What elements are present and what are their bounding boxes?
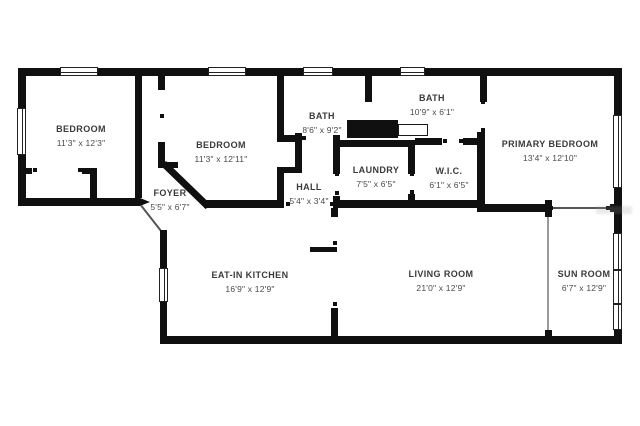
door-tick	[330, 202, 334, 206]
room-name: FOYER	[150, 187, 189, 201]
wall-segment	[477, 132, 485, 212]
wall-segment	[545, 330, 552, 344]
door-tick	[78, 168, 82, 172]
wall-segment	[160, 302, 167, 344]
wall-segment	[415, 138, 442, 145]
door-tick	[335, 172, 339, 176]
room-label-bath-2: BATH 10'9" x 6'1"	[410, 92, 454, 118]
wall-segment	[98, 68, 208, 76]
window	[303, 67, 333, 76]
room-dimensions: 8'6" x 9'2"	[302, 123, 341, 136]
window-sill	[613, 303, 622, 305]
room-dimensions: 5'5" x 6'7"	[150, 200, 189, 213]
wall-segment	[295, 133, 302, 167]
room-dimensions: 21'0" x 12'9"	[409, 281, 474, 294]
window-sill	[613, 269, 622, 271]
window	[159, 268, 168, 302]
room-name: SUN ROOM	[558, 268, 611, 282]
room-label-laundry: LAUNDRY 7'5" x 6'5"	[353, 164, 399, 190]
wall-segment	[158, 142, 165, 164]
room-label-sun-room: SUN ROOM 6'7" x 12'9"	[558, 268, 611, 294]
door-tick	[335, 191, 339, 195]
wall-segment	[333, 135, 340, 174]
room-label-wic: W.I.C. 6'1" x 6'5"	[429, 165, 468, 191]
room-dimensions: 16'9" x 12'9"	[212, 282, 289, 295]
floor-plan: BEDROOM 11'3" x 12'3" BEDROOM 11'3" x 12…	[0, 0, 640, 426]
wall-segment	[160, 230, 167, 268]
window	[60, 67, 98, 76]
door-tick	[160, 114, 164, 118]
room-name: LAUNDRY	[353, 164, 399, 178]
wall-segment	[477, 204, 552, 212]
room-name: BEDROOM	[195, 139, 248, 153]
room-dimensions: 11'3" x 12'3"	[56, 136, 106, 149]
kitchen-counter	[310, 247, 337, 252]
vanity-counter	[347, 120, 398, 138]
door-tick	[459, 139, 463, 143]
window	[208, 67, 246, 76]
door-tick	[549, 206, 553, 210]
wall-segment	[425, 68, 622, 76]
door-tick	[33, 168, 37, 172]
room-dimensions: 7'5" x 6'5"	[353, 177, 399, 190]
room-dimensions: 6'7" x 12'9"	[558, 281, 611, 294]
door-tick	[410, 190, 414, 194]
room-dimensions: 5'4" x 3'4"	[289, 194, 328, 207]
room-name: LIVING ROOM	[409, 268, 474, 282]
wall-segment	[277, 167, 284, 208]
room-label-bath-1: BATH 8'6" x 9'2"	[302, 110, 341, 136]
wall-segment	[160, 336, 622, 344]
wall-segment	[18, 68, 26, 108]
wall-segment	[135, 76, 142, 198]
wall-segment	[365, 68, 372, 102]
wall-segment	[331, 308, 338, 344]
wall-segment	[408, 140, 415, 174]
wall-segment	[18, 198, 140, 206]
room-name: PRIMARY BEDROOM	[502, 138, 599, 152]
door-tick	[481, 100, 485, 104]
watermark	[596, 206, 632, 214]
door-tick	[333, 302, 337, 306]
window	[613, 115, 622, 188]
room-name: BATH	[410, 92, 454, 106]
wall-segment	[480, 68, 487, 102]
room-label-hall: HALL 5'4" x 3'4"	[289, 181, 328, 207]
wall-segment	[246, 68, 303, 76]
room-name: W.I.C.	[429, 165, 468, 179]
room-dimensions: 10'9" x 6'1"	[410, 105, 454, 118]
closet-wall	[18, 168, 32, 174]
room-dimensions: 6'1" x 6'5"	[429, 178, 468, 191]
door-tick	[481, 128, 485, 132]
bath-fixture	[398, 124, 428, 136]
room-label-bedroom-1: BEDROOM 11'3" x 12'3"	[56, 123, 106, 149]
wall-segment	[340, 140, 415, 147]
window	[17, 108, 26, 155]
room-dimensions: 11'3" x 12'11"	[195, 152, 248, 165]
room-label-primary-bedroom: PRIMARY BEDROOM 13'4" x 12'10"	[502, 138, 599, 164]
wall-segment	[158, 76, 165, 90]
room-name: EAT-IN KITCHEN	[212, 269, 289, 283]
room-name: BATH	[302, 110, 341, 124]
room-name: BEDROOM	[56, 123, 106, 137]
wall-segment	[335, 200, 478, 208]
wall-segment	[277, 76, 284, 138]
door-tick	[302, 136, 306, 140]
wall-segment	[204, 200, 284, 208]
door-tick	[410, 172, 414, 176]
window	[613, 233, 622, 330]
wall-segment	[331, 208, 338, 217]
room-label-foyer: FOYER 5'5" x 6'7"	[150, 187, 189, 213]
wall-segment	[614, 68, 622, 115]
door-tick	[333, 241, 337, 245]
room-label-bedroom-2: BEDROOM 11'3" x 12'11"	[195, 139, 248, 165]
opening-line	[547, 217, 549, 330]
room-dimensions: 13'4" x 12'10"	[502, 151, 599, 164]
door-tick	[443, 139, 447, 143]
room-name: HALL	[289, 181, 328, 195]
room-label-eat-in-kitchen: EAT-IN KITCHEN 16'9" x 12'9"	[212, 269, 289, 295]
room-label-living-room: LIVING ROOM 21'0" x 12'9"	[409, 268, 474, 294]
closet-wall	[90, 174, 97, 200]
window	[400, 67, 425, 76]
